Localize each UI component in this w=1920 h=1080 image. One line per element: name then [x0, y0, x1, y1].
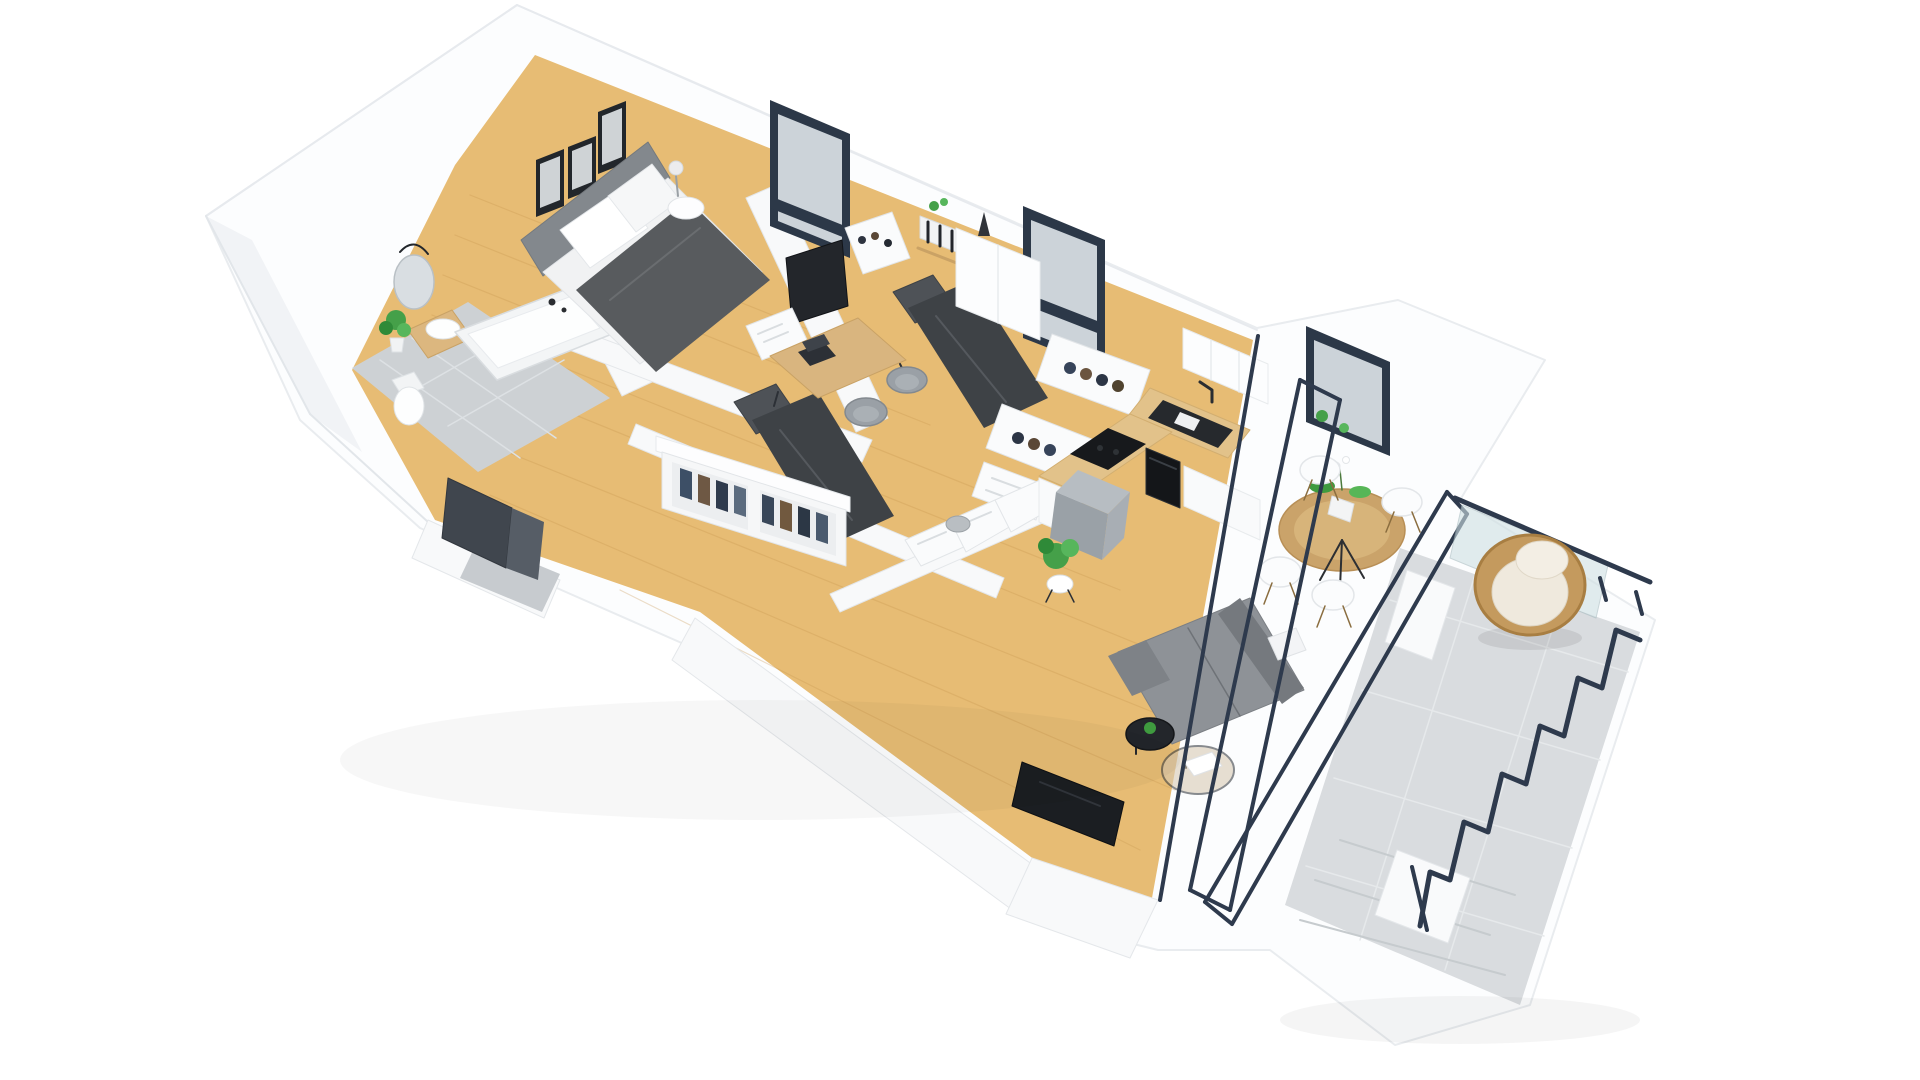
desk-chair-2-seat [895, 374, 919, 390]
bed1-lamp-shade [669, 161, 683, 175]
hob-burner-1 [1097, 445, 1103, 451]
bed1-nightstand [668, 197, 704, 219]
bay2-clothes-2 [1028, 438, 1040, 450]
dining-chair-1 [1300, 456, 1340, 484]
windowsill-plant-1 [1316, 410, 1328, 422]
bay2-clothes-1 [1012, 432, 1024, 444]
dining-chair-4 [1312, 580, 1354, 610]
shelf-plant-2 [940, 198, 948, 206]
bathtub-faucet-2 [562, 308, 567, 313]
bay1-clothes-2 [1080, 368, 1092, 380]
picture-photo-2 [572, 143, 592, 190]
hanging-cloth-6 [780, 500, 792, 532]
kitchen-plant-foliage-3 [1038, 538, 1054, 554]
hanging-cloth-4 [734, 485, 746, 517]
bay2-clothes-3 [1044, 444, 1056, 456]
bathroom-mirror [394, 255, 434, 309]
coffee-table-plant [1144, 722, 1156, 734]
hob-burner-2 [1113, 449, 1119, 455]
shoe-2 [871, 232, 879, 240]
kitchen-plant-pot [1047, 575, 1073, 593]
picture-photo-3 [602, 108, 622, 165]
console-basket [946, 516, 970, 532]
screenshot-root [0, 0, 1920, 1080]
orchid-flower-2 [1343, 457, 1350, 464]
hanging-cloth-7 [798, 506, 810, 538]
bay1-clothes-4 [1112, 380, 1124, 392]
dining-chair-2 [1382, 488, 1422, 516]
hanging-cloth-2 [698, 474, 710, 506]
orchid-leaf-2 [1349, 486, 1371, 498]
shoe-1 [858, 236, 866, 244]
building-drop-shadow [340, 700, 1180, 820]
bay1-clothes-3 [1096, 374, 1108, 386]
desk-chair-1-seat [853, 406, 879, 422]
windowsill-plant-2 [1339, 423, 1349, 433]
hanging-cloth-1 [680, 468, 692, 500]
hanging-cloth-3 [716, 480, 728, 512]
balcony-drop-shadow [1280, 996, 1640, 1044]
rattan-chair-pillow [1516, 541, 1568, 579]
shoe-3 [884, 239, 892, 247]
bathtub-faucet-1 [549, 299, 556, 306]
toilet-bowl [394, 387, 424, 425]
hanging-cloth-8 [816, 512, 828, 544]
bathroom-sink [426, 319, 460, 339]
bathroom-plant-foliage-3 [397, 323, 411, 337]
dining-chair-3 [1259, 557, 1301, 587]
bathroom-plant-pot [390, 338, 404, 352]
hanging-cloth-5 [762, 494, 774, 526]
bay1-clothes-1 [1064, 362, 1076, 374]
bathroom-plant-foliage-2 [379, 321, 393, 335]
kitchen-plant-foliage-2 [1061, 539, 1079, 557]
picture-photo-1 [540, 156, 560, 208]
shelf-plant-1 [929, 201, 939, 211]
floorplan-svg [0, 0, 1920, 1080]
